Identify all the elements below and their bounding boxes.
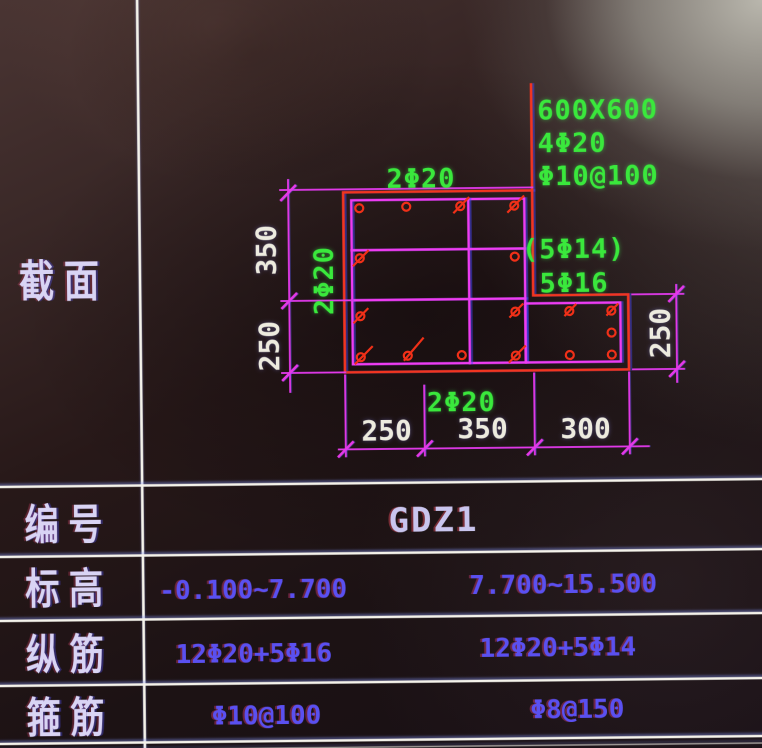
value-stirrup-2: Φ8@150 <box>530 694 624 725</box>
row-label-number: 编 号 <box>24 501 102 549</box>
value-stirrup-1: Φ10@100 <box>212 701 322 732</box>
table-border-bottom <box>0 736 762 744</box>
value-longitudinal-1: 12Φ20+5Φ16 <box>176 639 333 671</box>
value-elevation-2: 7.700~15.500 <box>469 569 657 601</box>
stirrup-outer-square <box>351 198 526 364</box>
rebar-hook-tick <box>404 338 424 361</box>
table-labels: 截 面 编 号 标 高 纵 筋 箍 筋 <box>19 257 105 742</box>
dim-left-top: 350 <box>249 225 283 276</box>
value-longitudinal-2: 12Φ20+5Φ14 <box>479 632 636 664</box>
row-label-stirrups: 箍 筋 <box>26 694 104 742</box>
stirrup-horizontal-leg-1 <box>352 248 525 250</box>
callout-bottom-bars: 2Φ20 <box>427 387 496 419</box>
ext-line <box>534 373 535 454</box>
callout-leader-line <box>531 84 532 190</box>
row-label-longitudinal-bars: 纵 筋 <box>26 631 104 679</box>
dim-right: 250 <box>643 308 677 359</box>
callout-corner-bars: 4Φ20 <box>537 128 606 160</box>
callout-corner-stirrup: Φ10@100 <box>538 160 659 192</box>
ext-line <box>424 386 425 456</box>
table-vertical-divider <box>137 0 145 748</box>
ext-line <box>345 375 346 456</box>
drawing-canvas: 350 250 250 350 300 250 2Φ20 2Φ20 2Φ20 6… <box>0 0 762 748</box>
callout-left-bars: 2Φ20 <box>309 246 341 315</box>
dim-left-bottom: 250 <box>252 321 286 372</box>
value-column-number: GDZ1 <box>388 500 478 541</box>
callout-side-bars-optional: (5Φ14) <box>522 233 626 265</box>
stirrup-horizontal-leg-2 <box>352 298 525 300</box>
concrete-outline <box>342 83 629 372</box>
table-border-row1 <box>0 549 762 557</box>
callout-corner-size: 600X600 <box>537 94 658 126</box>
panel-label-section: 截 面 <box>19 257 100 307</box>
callout-top-bars: 2Φ20 <box>386 163 455 195</box>
table-border-top <box>0 479 762 487</box>
table-border-row2 <box>0 613 762 621</box>
dim-bottom-left: 250 <box>361 414 412 448</box>
value-elevation-1: -0.100~7.700 <box>159 574 347 606</box>
callout-side-bars: 5Φ16 <box>539 268 608 300</box>
ext-line <box>629 372 630 453</box>
stirrup-vertical-leg <box>468 199 470 363</box>
cad-drawing-photo: 350 250 250 350 300 250 2Φ20 2Φ20 2Φ20 6… <box>0 0 762 748</box>
row-label-elevation: 标 高 <box>25 565 103 613</box>
table-border-row3 <box>0 678 762 686</box>
dim-line-left <box>288 180 290 392</box>
dim-bottom-right: 300 <box>560 412 611 446</box>
